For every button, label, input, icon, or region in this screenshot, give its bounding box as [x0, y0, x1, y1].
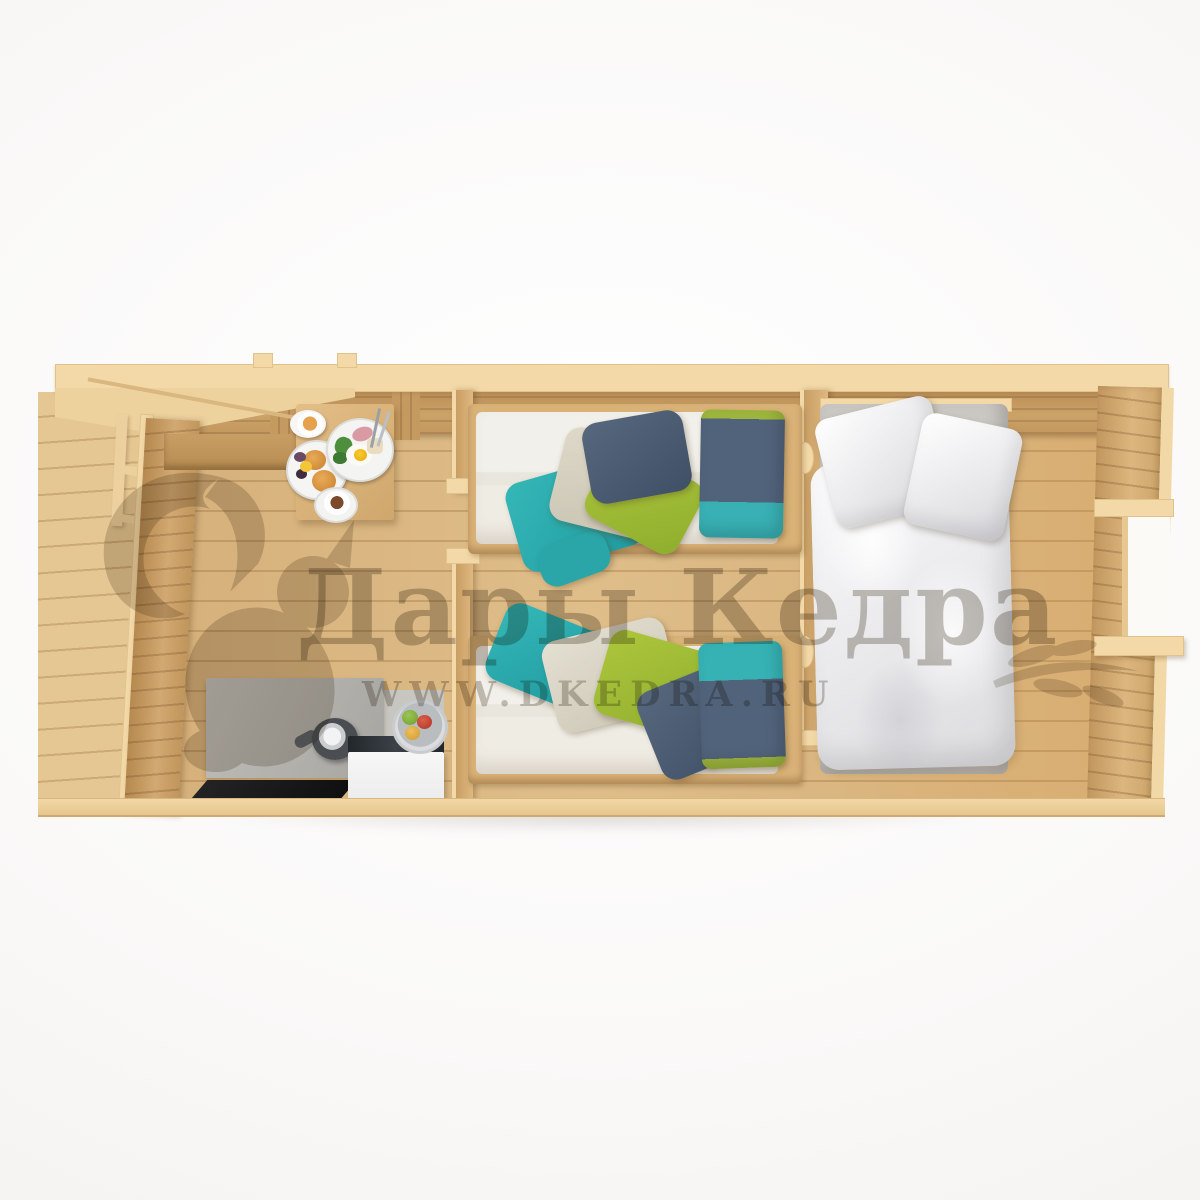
- wall-bench: [164, 434, 298, 470]
- window-opening: [1122, 514, 1170, 640]
- pillow-two-tone: [699, 409, 785, 538]
- window-sill: [1094, 499, 1174, 517]
- render-canvas: Дары Кедра WWW.DKEDRA.RU: [0, 0, 1200, 1200]
- blanket-slate: [580, 408, 695, 506]
- window-niche-right-jamb: [392, 390, 420, 440]
- egg-yolk: [354, 449, 367, 461]
- tea-cup: [324, 491, 350, 515]
- window-sill: [1094, 636, 1184, 656]
- pillow-two-tone: [698, 641, 786, 770]
- wall-joint-tab: [337, 353, 357, 368]
- lemon-slice: [300, 461, 312, 472]
- green-apple: [402, 710, 418, 725]
- top-wall-cut-edge: [55, 364, 1169, 392]
- yellow-apple: [405, 726, 420, 740]
- bottom-wall-cut-edge: [38, 798, 1165, 817]
- wall-joint-tab: [253, 353, 273, 368]
- red-apple: [417, 715, 432, 729]
- salad-greens: [333, 452, 347, 464]
- coffee-cup: [297, 412, 323, 436]
